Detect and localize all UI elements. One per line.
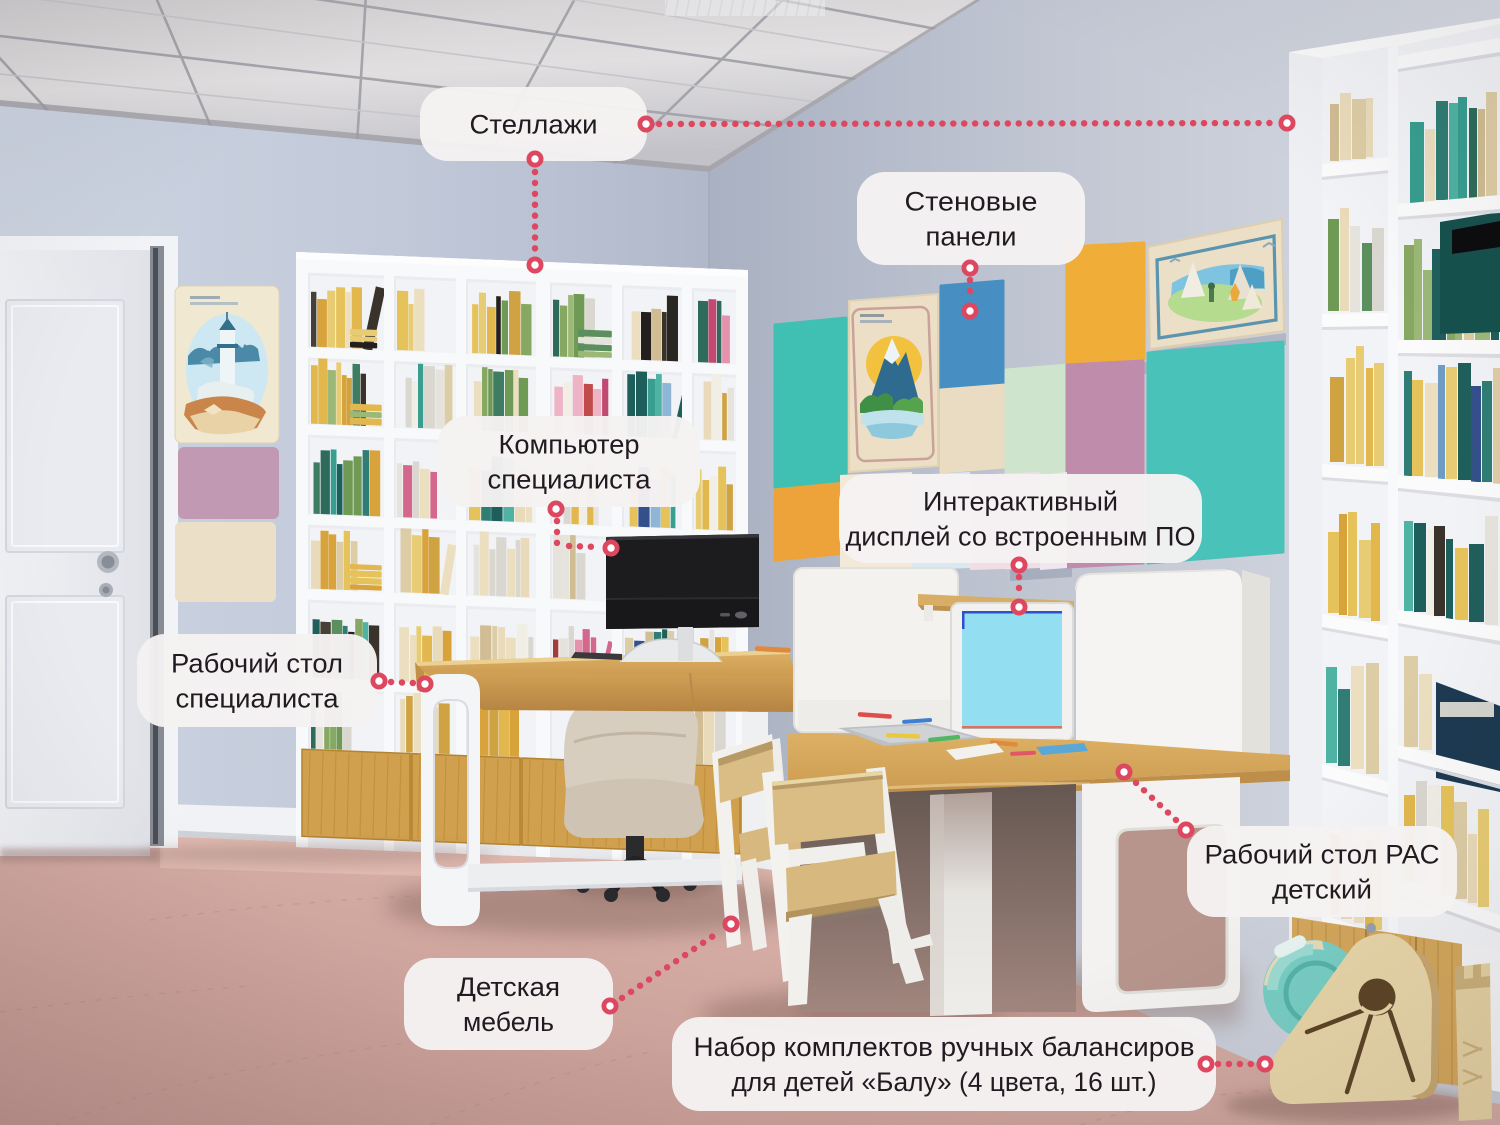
svg-text:мебель: мебель [463,1007,554,1037]
svg-text:Стеллажи: Стеллажи [470,110,598,140]
svg-text:специалиста: специалиста [488,465,652,495]
svg-text:Рабочий стол РАС: Рабочий стол РАС [1205,840,1440,870]
svg-text:Стеновые: Стеновые [905,187,1038,217]
svg-text:дисплей со встроенным ПО: дисплей со встроенным ПО [846,522,1196,552]
svg-text:детский: детский [1272,875,1372,905]
svg-text:Компьютер: Компьютер [499,430,640,460]
svg-text:Набор комплектов ручных баланс: Набор комплектов ручных балансиров [694,1032,1195,1062]
svg-text:панели: панели [926,222,1017,252]
svg-text:специалиста: специалиста [176,684,340,714]
svg-text:Интерактивный: Интерактивный [923,487,1118,517]
svg-text:для детей «Балу» (4 цвета, 16: для детей «Балу» (4 цвета, 16 шт.) [732,1067,1157,1097]
svg-text:Детская: Детская [457,972,560,1002]
svg-text:Рабочий стол: Рабочий стол [171,649,343,679]
